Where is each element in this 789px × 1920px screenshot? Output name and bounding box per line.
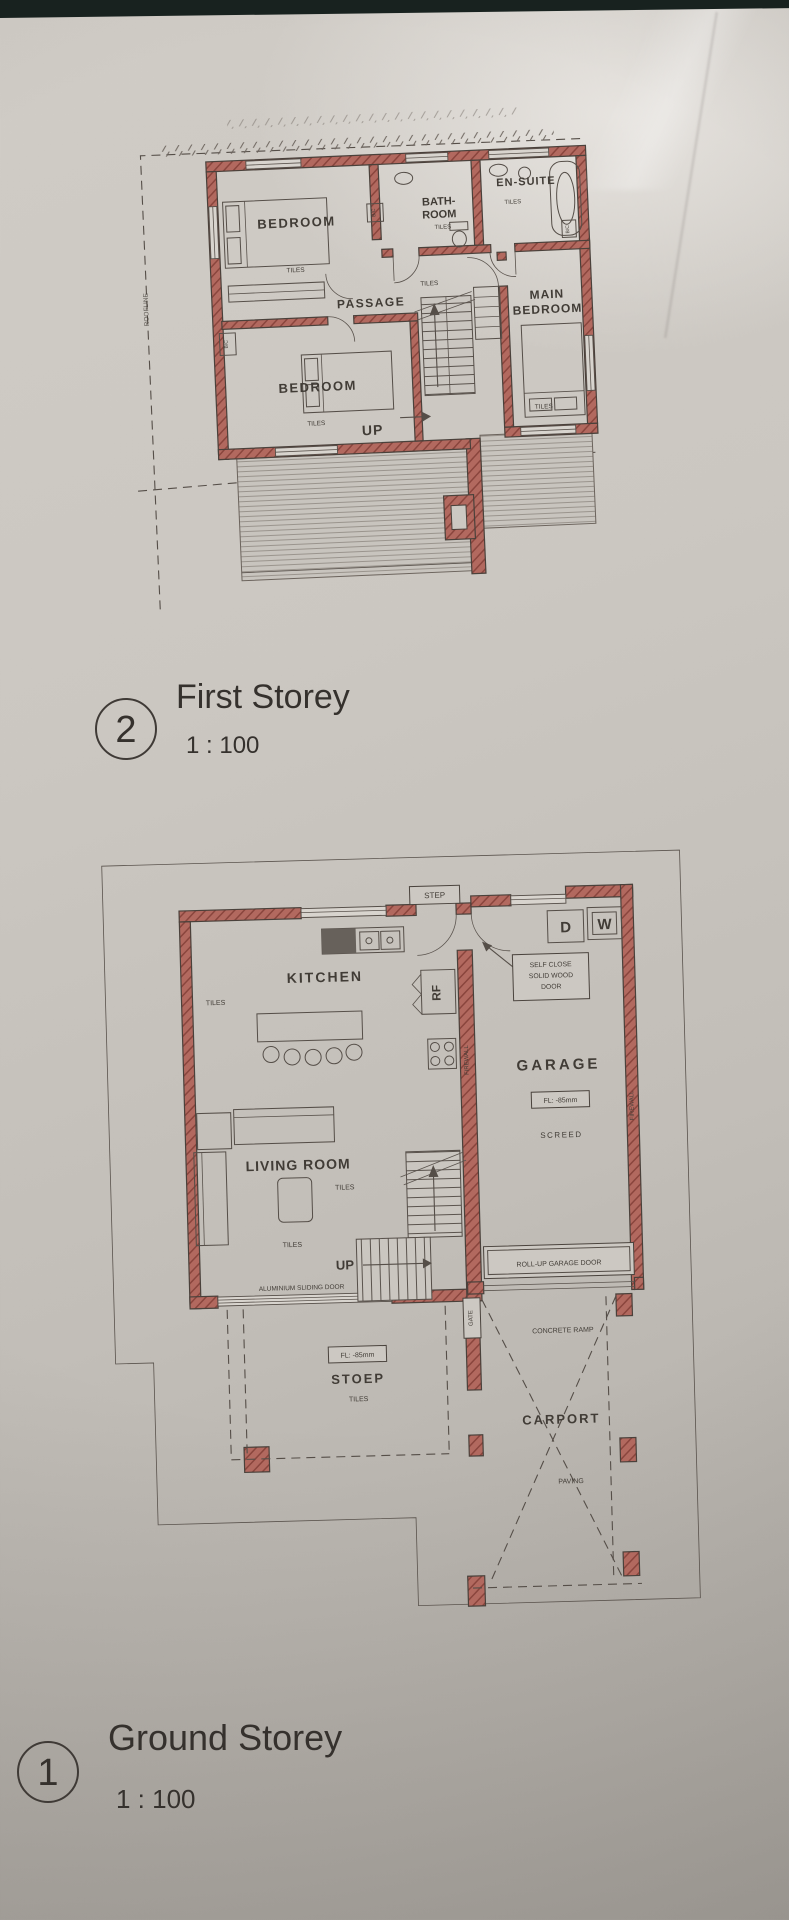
room-label-ensuite: EN-SUITE: [496, 175, 556, 190]
room-label-bathroom: BATH-: [422, 195, 456, 208]
dimension-ticks-faint: [227, 107, 517, 129]
fl-label: FL: -85mm: [543, 1097, 577, 1105]
dryer-label: D: [560, 919, 571, 936]
drawing-scale: 1 : 100: [116, 1784, 196, 1814]
room-label-passage: PASSAGE: [337, 294, 406, 311]
stoep-fl-tag: FL: -85mm: [328, 1345, 386, 1363]
basin-icon: [394, 172, 413, 185]
gate-label: GATE: [468, 1310, 474, 1326]
self-close-note: SELF CLOSE SOLID WOOD DOOR: [512, 953, 589, 1001]
room-label-bathroom2: ROOM: [422, 208, 457, 221]
tiles-label: TILES: [504, 199, 521, 206]
gate-tag: GATE: [463, 1298, 481, 1338]
bc-label: B/C: [224, 340, 230, 349]
kitchen-counter: [322, 927, 405, 954]
tiles-label: TILES: [535, 403, 554, 411]
room-label-bedroom1: BEDROOM: [257, 213, 336, 231]
paving-label: PAVING: [558, 1478, 584, 1486]
ground-storey-stairs: [354, 1150, 470, 1301]
room-label-stoep: STOEP: [331, 1370, 385, 1386]
stove-icon: [428, 1038, 457, 1069]
wardrobe-icon: [228, 282, 325, 302]
screed-label: SCREED: [540, 1130, 583, 1140]
sofa-icon: [234, 1107, 335, 1145]
bc-label: B/C: [565, 225, 571, 234]
fl-label: FL: -85mm: [340, 1352, 374, 1360]
tiles-label: TILES: [307, 420, 326, 428]
first-storey-title: 2 First Storey 1 : 100: [96, 678, 350, 759]
drawing-title: First Storey: [176, 678, 350, 716]
drawing-number: 1: [37, 1752, 58, 1794]
ramp-label: CONCRETE RAMP: [532, 1327, 594, 1336]
room-label-bedroom2: BEDROOM: [278, 378, 357, 396]
linen-cupboard: [473, 286, 501, 339]
tiles-label: TILES: [349, 1396, 369, 1404]
ground-storey-title: 1 Ground Storey 1 : 100: [18, 1717, 342, 1814]
room-label-main-bedroom2: BEDROOM: [512, 301, 582, 318]
self-close-line2: SOLID WOOD: [529, 972, 573, 980]
sliding-door-label: ALUMINIUM SLIDING DOOR: [259, 1284, 345, 1293]
room-label-main-bedroom: MAIN: [529, 286, 564, 301]
washer-label: W: [597, 916, 612, 933]
self-close-line3: DOOR: [541, 983, 562, 991]
bc-label: B/C: [371, 208, 377, 217]
room-label-garage: GARAGE: [516, 1055, 600, 1074]
washer-box: W: [587, 907, 622, 940]
drawing-scale: 1 : 100: [186, 732, 259, 759]
carport-markings: [465, 1295, 642, 1588]
garage-fl-tag: FL: -85mm: [531, 1091, 589, 1109]
dryer-box: D: [547, 910, 584, 943]
ground-storey-plan: STEP D W SELF CLOSE SOLID WOOD DOOR: [102, 850, 701, 1616]
tiles-label: TILES: [335, 1184, 355, 1192]
toilet-icon: [450, 222, 469, 248]
firewall-label-right: FIREWALL: [629, 1090, 636, 1121]
rollup-door: ROLL-UP GARAGE DOOR: [482, 1242, 634, 1290]
chimney: [444, 495, 476, 540]
basin-icon: [489, 164, 508, 177]
tiles-label: TILES: [434, 224, 451, 231]
tiles-label: TILES: [283, 1242, 303, 1250]
coffee-table-icon: [278, 1177, 313, 1222]
first-storey-plan: ROOFLINE : 600mm OVERHANG ROOFLINE: [122, 104, 605, 610]
room-label-carport: CARPORT: [522, 1410, 601, 1427]
firewall-label-left: FIREWALL: [464, 1044, 471, 1075]
step-label: STEP: [424, 891, 445, 901]
room-label-living: LIVING ROOM: [245, 1155, 351, 1174]
roofline-side-note: ROOFLINE: [142, 292, 150, 326]
drawing-title: Ground Storey: [108, 1717, 342, 1758]
tiles-label: TILES: [420, 280, 439, 288]
floor-plan-sheet: ROOFLINE : 600mm OVERHANG ROOFLINE: [0, 0, 789, 1920]
up-label: UP: [362, 421, 384, 438]
kitchen-island: [257, 1011, 363, 1067]
drawing-number: 2: [115, 709, 136, 751]
armchair-icon: [197, 1113, 232, 1150]
up-label: UP: [336, 1257, 355, 1273]
fridge-label: RF: [429, 985, 443, 1001]
fridge-icon: RF: [412, 969, 456, 1014]
tiles-label: TILES: [286, 267, 305, 275]
bed-icon: [223, 198, 330, 268]
room-label-kitchen: KITCHEN: [287, 968, 364, 986]
bed-icon: [521, 323, 585, 418]
tiles-label: TILES: [206, 1000, 226, 1008]
self-close-line1: SELF CLOSE: [530, 961, 573, 969]
